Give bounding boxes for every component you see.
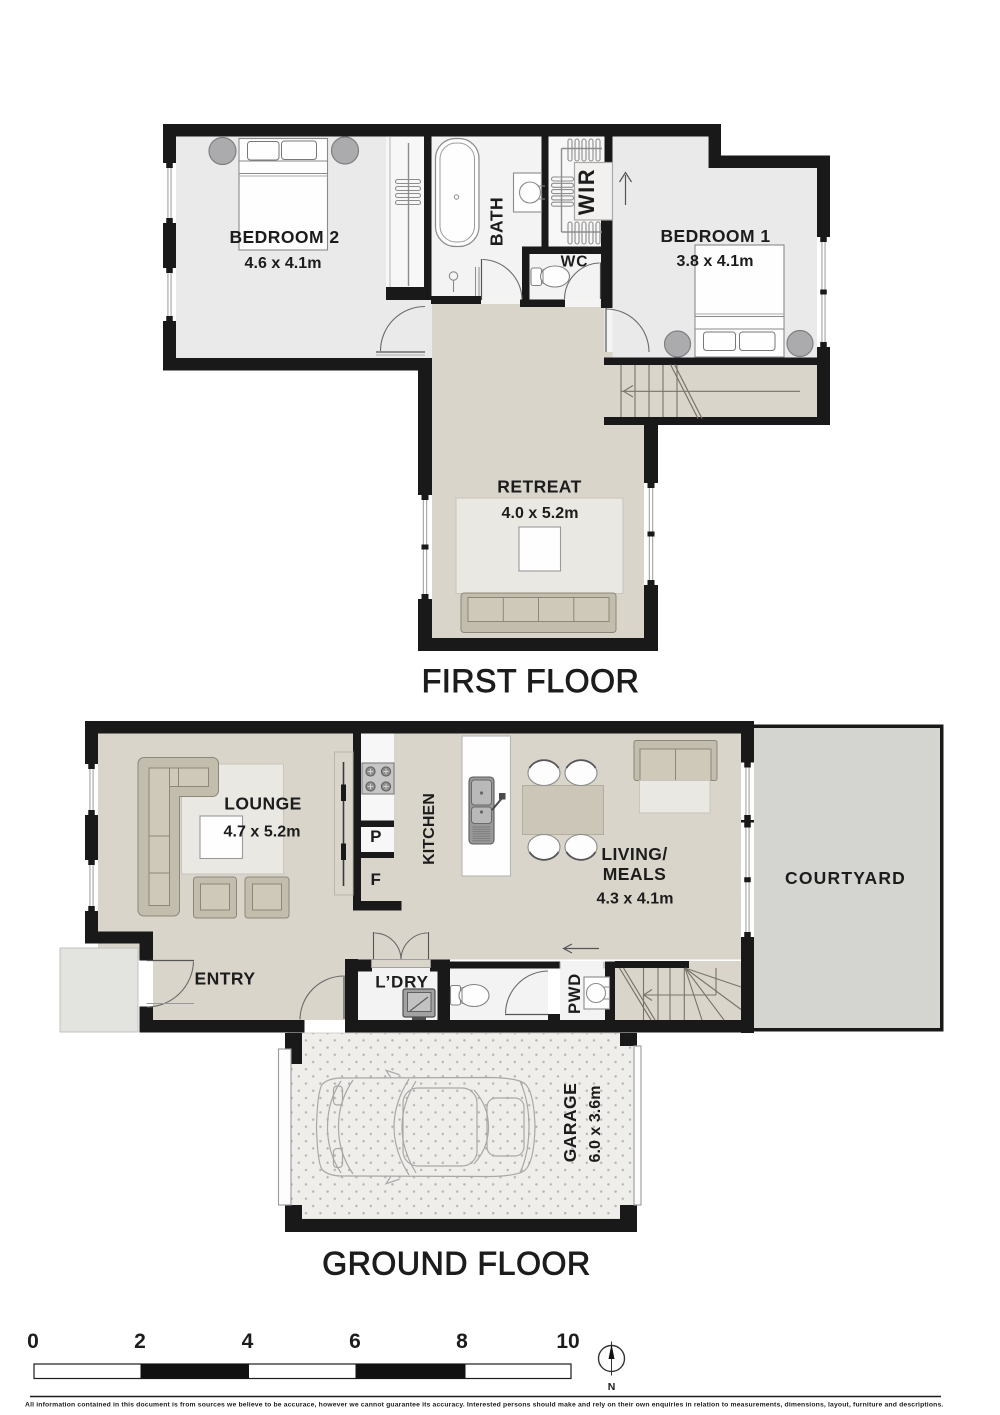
svg-text:FIRST FLOOR: FIRST FLOOR	[422, 663, 640, 699]
svg-text:6.0 x 3.6m: 6.0 x 3.6m	[587, 1086, 604, 1163]
svg-text:ENTRY: ENTRY	[195, 969, 256, 989]
svg-text:4: 4	[242, 1330, 254, 1353]
svg-text:WIR: WIR	[574, 168, 599, 215]
svg-text:BEDROOM 2: BEDROOM 2	[229, 227, 339, 247]
svg-text:BEDROOM 1: BEDROOM 1	[660, 226, 770, 246]
svg-text:GARAGE: GARAGE	[560, 1083, 580, 1163]
svg-text:BATH: BATH	[487, 197, 507, 246]
svg-text:3.8 x 4.1m: 3.8 x 4.1m	[677, 253, 754, 270]
svg-text:4.0 x 5.2m: 4.0 x 5.2m	[502, 505, 579, 522]
svg-text:RETREAT: RETREAT	[497, 477, 582, 497]
svg-text:LIVING/: LIVING/	[601, 844, 667, 864]
svg-text:4.7 x 5.2m: 4.7 x 5.2m	[224, 824, 301, 841]
svg-text:4.6 x 4.1m: 4.6 x 4.1m	[245, 255, 322, 272]
svg-text:LOUNGE: LOUNGE	[224, 794, 302, 814]
svg-text:2: 2	[134, 1330, 146, 1353]
svg-text:6: 6	[349, 1330, 361, 1353]
svg-text:N: N	[608, 1381, 616, 1393]
svg-text:L’DRY: L’DRY	[375, 973, 428, 992]
svg-text:COURTYARD: COURTYARD	[785, 868, 906, 888]
svg-text:10: 10	[556, 1330, 579, 1353]
svg-text:4.3 x 4.1m: 4.3 x 4.1m	[597, 891, 674, 908]
svg-text:P: P	[370, 827, 382, 846]
svg-text:All information contained in t: All information contained in this docume…	[25, 1402, 943, 1409]
svg-text:8: 8	[456, 1330, 468, 1353]
svg-text:0: 0	[27, 1330, 39, 1353]
svg-text:GROUND FLOOR: GROUND FLOOR	[322, 1246, 591, 1282]
svg-text:KITCHEN: KITCHEN	[421, 793, 438, 865]
svg-text:WC: WC	[561, 254, 589, 271]
svg-text:MEALS: MEALS	[603, 864, 667, 884]
svg-text:PWD: PWD	[566, 973, 584, 1014]
svg-text:F: F	[371, 870, 382, 889]
